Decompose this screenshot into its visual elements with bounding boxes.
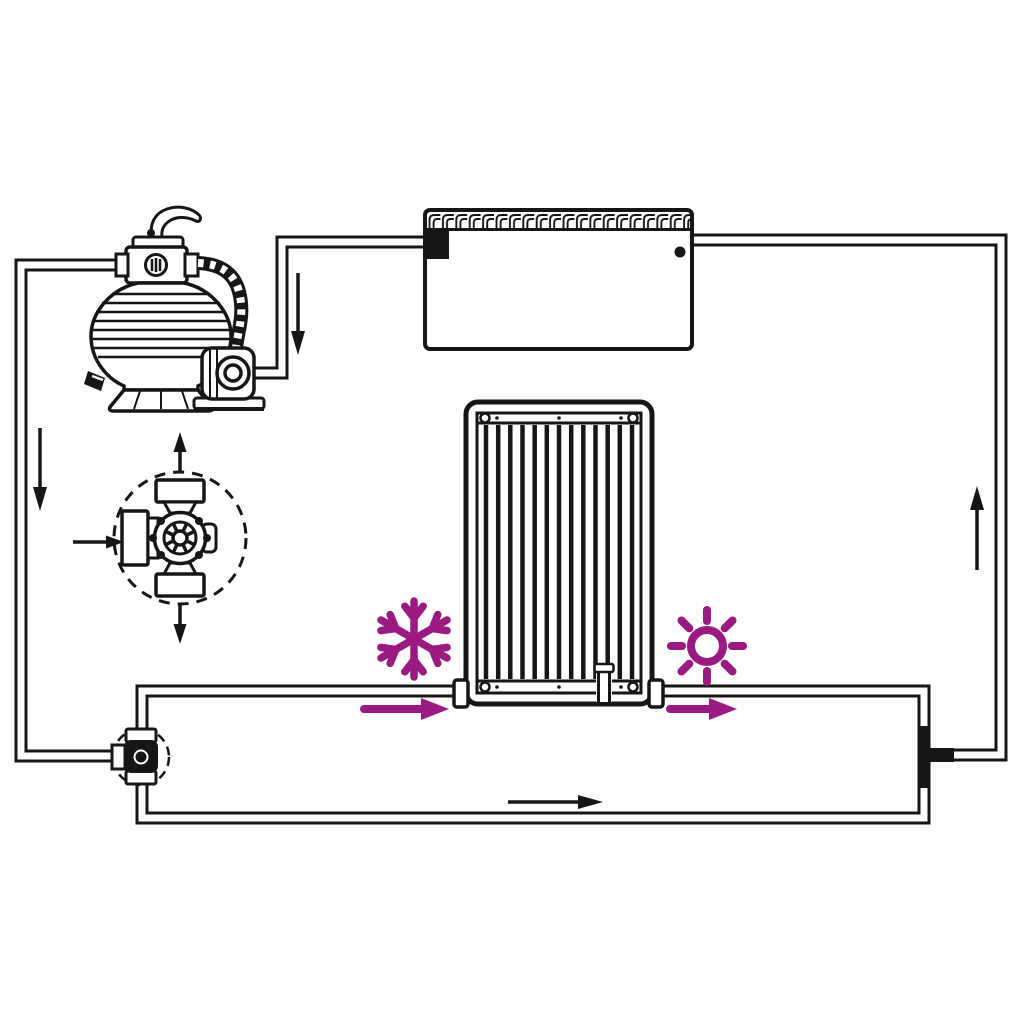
return-outlet [675, 247, 686, 258]
pool-edge-tiles [427, 213, 690, 229]
diagram-canvas [0, 0, 1024, 1024]
panel-outlet-coupling [649, 680, 663, 707]
detail-top-port [156, 480, 204, 502]
pool-solar-heater-schematic [0, 0, 1024, 1024]
valve-right-port [185, 254, 198, 276]
panel-inlet-coupling [454, 680, 468, 707]
pool-figure [425, 210, 692, 349]
bypass-valve-side-port [112, 745, 125, 769]
panel-bottom-joint [595, 664, 614, 702]
valve-left-port [116, 254, 128, 276]
detail-bottom-port [156, 574, 204, 596]
solar-panel-figure [454, 402, 663, 707]
detail-side-port [122, 511, 148, 565]
skimmer-inlet [426, 229, 449, 259]
